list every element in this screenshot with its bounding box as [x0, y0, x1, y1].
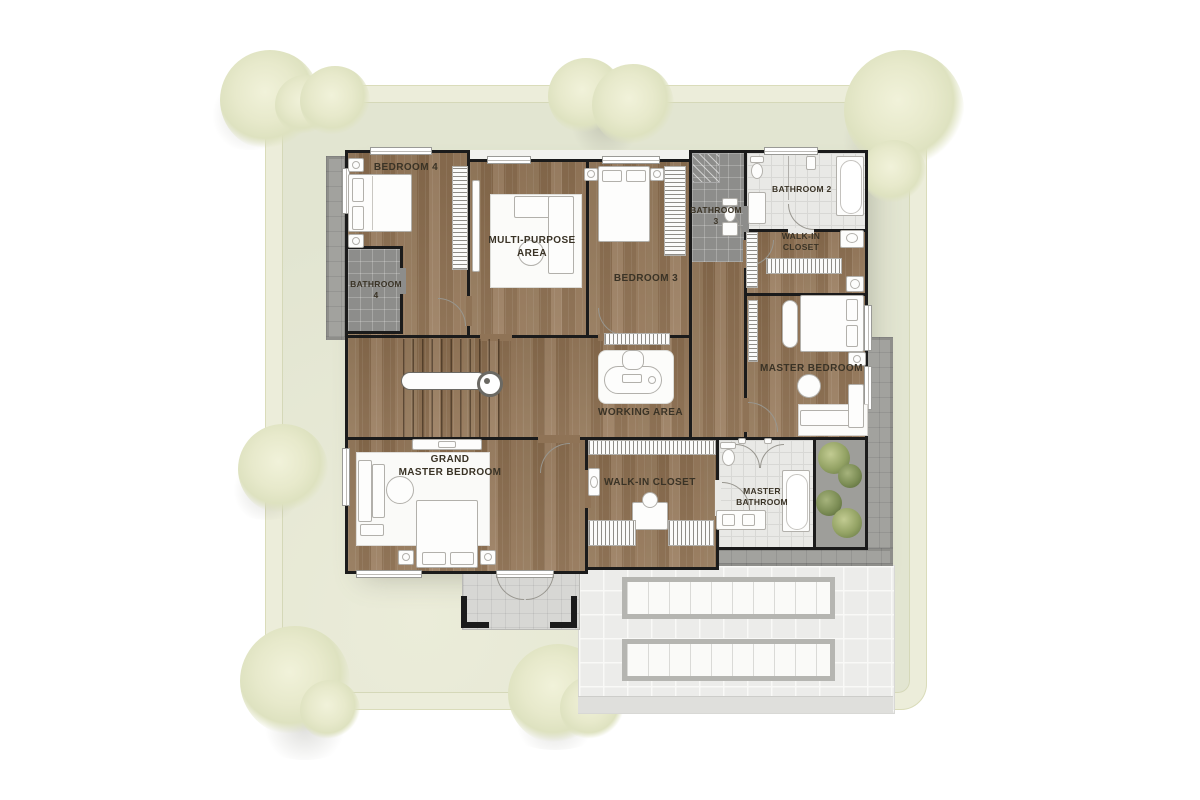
- shower-head: [738, 438, 746, 444]
- label-bedroom3: BEDROOM 3: [598, 272, 694, 285]
- rear-terrace-strip: [716, 548, 893, 566]
- tree: [862, 140, 926, 204]
- ottoman: [360, 524, 384, 536]
- bed-pillow: [422, 552, 446, 565]
- blanket-line: [372, 176, 373, 230]
- window: [370, 147, 432, 155]
- skylight: [622, 639, 835, 681]
- bed-pillow: [846, 325, 858, 347]
- bed-pillow: [626, 170, 646, 182]
- label-text: WALK-IN CLOSET: [604, 477, 696, 488]
- handrail-spiral: [477, 371, 503, 397]
- desk-accessory: [648, 376, 656, 384]
- plant: [838, 464, 862, 488]
- label-text: BATHROOM: [690, 205, 742, 215]
- label-text: MASTER: [743, 486, 781, 496]
- closet-rail: [766, 258, 842, 274]
- wardrobe: [664, 166, 686, 256]
- sofa: [800, 410, 850, 426]
- tree: [238, 424, 328, 514]
- window: [342, 448, 350, 506]
- linen-closet: [748, 300, 758, 362]
- window: [602, 156, 660, 164]
- closet-shelving: [588, 440, 716, 455]
- label-master-bathroom: MASTER BATHROOM: [728, 486, 796, 508]
- label-bathroom4: BATHROOM 4: [350, 279, 402, 301]
- label-text: BEDROOM 4: [374, 162, 438, 173]
- tree: [592, 64, 674, 146]
- closet-shelving: [746, 232, 758, 288]
- toilet-tank: [750, 156, 764, 163]
- label-working-area: WORKING AREA: [598, 406, 683, 419]
- lamp: [484, 553, 492, 561]
- vanity-sink: [748, 192, 766, 224]
- plant: [832, 508, 862, 538]
- tree: [300, 66, 370, 136]
- bathtub-basin: [840, 160, 862, 214]
- window: [764, 147, 818, 155]
- round-table: [386, 476, 414, 504]
- label-text: BATHROOM: [736, 497, 788, 507]
- bed-pillow: [352, 206, 364, 230]
- wardrobe: [452, 166, 468, 270]
- window: [356, 570, 422, 578]
- shower-column: [806, 156, 816, 170]
- sofa-back: [848, 384, 864, 428]
- label-text: BATHROOM 2: [772, 184, 832, 194]
- lamp: [402, 553, 410, 561]
- label-text: 4: [373, 290, 378, 300]
- pouf: [797, 374, 821, 398]
- sink: [742, 514, 755, 526]
- toilet: [751, 163, 763, 179]
- cabinet-bowl: [590, 476, 598, 488]
- sink: [722, 514, 735, 526]
- lamp: [587, 170, 595, 178]
- closet-shelving: [668, 520, 714, 546]
- sofa: [372, 464, 385, 518]
- corridor: [689, 262, 747, 440]
- label-text: MASTER BEDROOM: [399, 467, 502, 478]
- bench: [782, 300, 798, 348]
- label-text: BATHROOM: [350, 279, 402, 289]
- label-bedroom4: BEDROOM 4: [352, 161, 460, 174]
- stool: [850, 279, 860, 289]
- bed-pillow: [450, 552, 474, 565]
- tv: [438, 441, 456, 448]
- porch-wall: [461, 622, 489, 628]
- label-bathroom2: BATHROOM 2: [772, 184, 832, 195]
- roof-edge-band: [578, 696, 893, 713]
- skylight: [622, 577, 835, 619]
- bed-pillow: [846, 299, 858, 321]
- bed-pillow: [602, 170, 622, 182]
- stool: [642, 492, 658, 508]
- handrail-spiral-center: [484, 378, 490, 384]
- label-text: CLOSET: [783, 242, 819, 252]
- sofa-back: [358, 460, 372, 522]
- label-text: AREA: [517, 248, 547, 259]
- tree: [300, 680, 360, 740]
- label-text: WORKING AREA: [598, 407, 683, 418]
- dresser-bowl: [846, 233, 858, 243]
- desk-monitor: [622, 374, 642, 383]
- label-multi-purpose: MULTI-PURPOSE AREA: [484, 234, 580, 260]
- wall-shelf: [604, 333, 670, 345]
- label-text: BEDROOM 3: [614, 273, 678, 284]
- label-text: MULTI-PURPOSE: [488, 235, 575, 246]
- label-grand-master-bedroom: GRAND MASTER BEDROOM: [390, 453, 510, 479]
- toilet-tank: [720, 442, 736, 449]
- lamp: [653, 170, 661, 178]
- window: [487, 156, 531, 164]
- door-gap: [538, 435, 580, 443]
- toilet: [722, 449, 735, 466]
- built-in-cabinet: [472, 180, 480, 272]
- stair-handrail: [401, 372, 487, 390]
- label-bathroom3: BATHROOM 3: [686, 205, 746, 227]
- label-walk-in-closet-bottom: WALK-IN CLOSET: [604, 476, 696, 489]
- closet-shelving: [588, 520, 636, 546]
- lamp: [352, 237, 360, 245]
- porch-wall: [550, 622, 577, 628]
- door-gap: [466, 296, 472, 326]
- floor-plan-canvas: BEDROOM 4 MULTI-PURPOSE AREA BEDROOM 3 B…: [0, 0, 1200, 800]
- shower-head: [764, 438, 772, 444]
- label-text: 3: [713, 216, 718, 226]
- window: [864, 305, 872, 351]
- bed-pillow: [352, 178, 364, 202]
- desk-chair: [622, 350, 644, 370]
- label-master-bedroom: MASTER BEDROOM: [760, 362, 863, 375]
- label-text: MASTER BEDROOM: [760, 363, 863, 374]
- label-walk-in-closet-top: WALK-IN CLOSET: [772, 231, 830, 253]
- label-text: GRAND: [431, 454, 470, 465]
- shower: [692, 153, 720, 183]
- label-text: WALK-IN: [782, 231, 820, 241]
